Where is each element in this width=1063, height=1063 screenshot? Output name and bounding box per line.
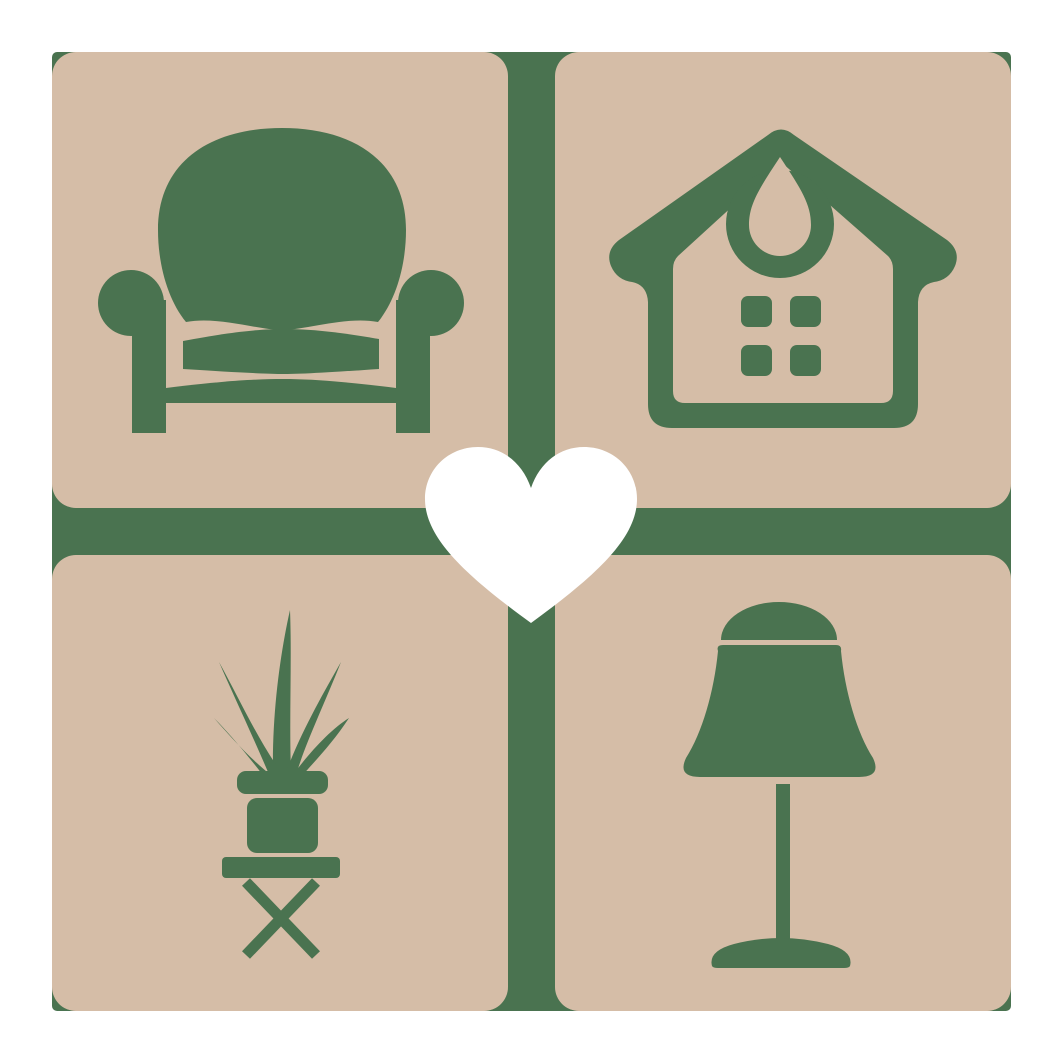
heart-icon bbox=[420, 440, 645, 630]
window-pane bbox=[741, 296, 772, 327]
window-pane bbox=[741, 345, 772, 376]
window-pane bbox=[790, 296, 821, 327]
logo-canvas bbox=[0, 0, 1063, 1063]
stool-top bbox=[222, 857, 340, 878]
pot-rim bbox=[237, 771, 328, 794]
window-pane bbox=[790, 345, 821, 376]
lamp-shade bbox=[683, 645, 875, 777]
lamp-cap bbox=[721, 602, 837, 640]
lamp-stem bbox=[776, 784, 790, 946]
lamp-base bbox=[711, 938, 850, 968]
pot-body bbox=[247, 798, 318, 853]
